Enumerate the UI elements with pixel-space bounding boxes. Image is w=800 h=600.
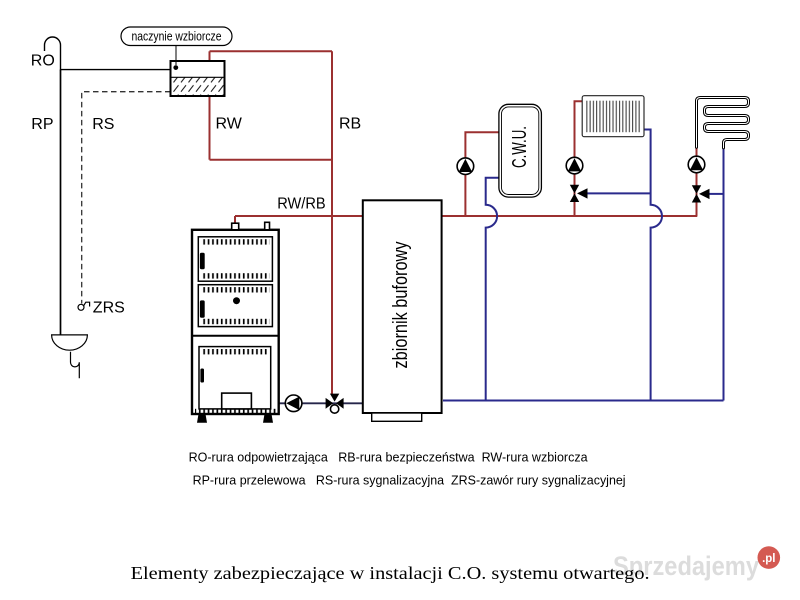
svg-text:Elementy zabezpieczające w in: Elementy zabezpieczające w instalacji C.… [131,563,650,583]
svg-text:RB: RB [339,116,361,133]
svg-text:RW/RB: RW/RB [277,196,326,213]
svg-text:RO-rura odpowietrzająca RB-r: RO-rura odpowietrzająca RB-rura bezpiecz… [189,450,589,465]
svg-text:RO: RO [31,52,55,69]
svg-text:RP: RP [31,116,53,133]
svg-text:naczynie wzbiorcze: naczynie wzbiorcze [132,29,222,44]
svg-text:zbiornik buforowy: zbiornik buforowy [390,242,412,369]
svg-text:RP-rura przelewowa RS-rura s: RP-rura przelewowa RS-rura sygnalizacyjn… [193,473,626,488]
svg-text:RW: RW [216,116,243,133]
svg-text:C.W.U.: C.W.U. [509,126,531,168]
svg-text:.pl: .pl [762,553,775,565]
svg-text:RS: RS [92,116,114,133]
svg-text:ZRS: ZRS [93,300,125,317]
